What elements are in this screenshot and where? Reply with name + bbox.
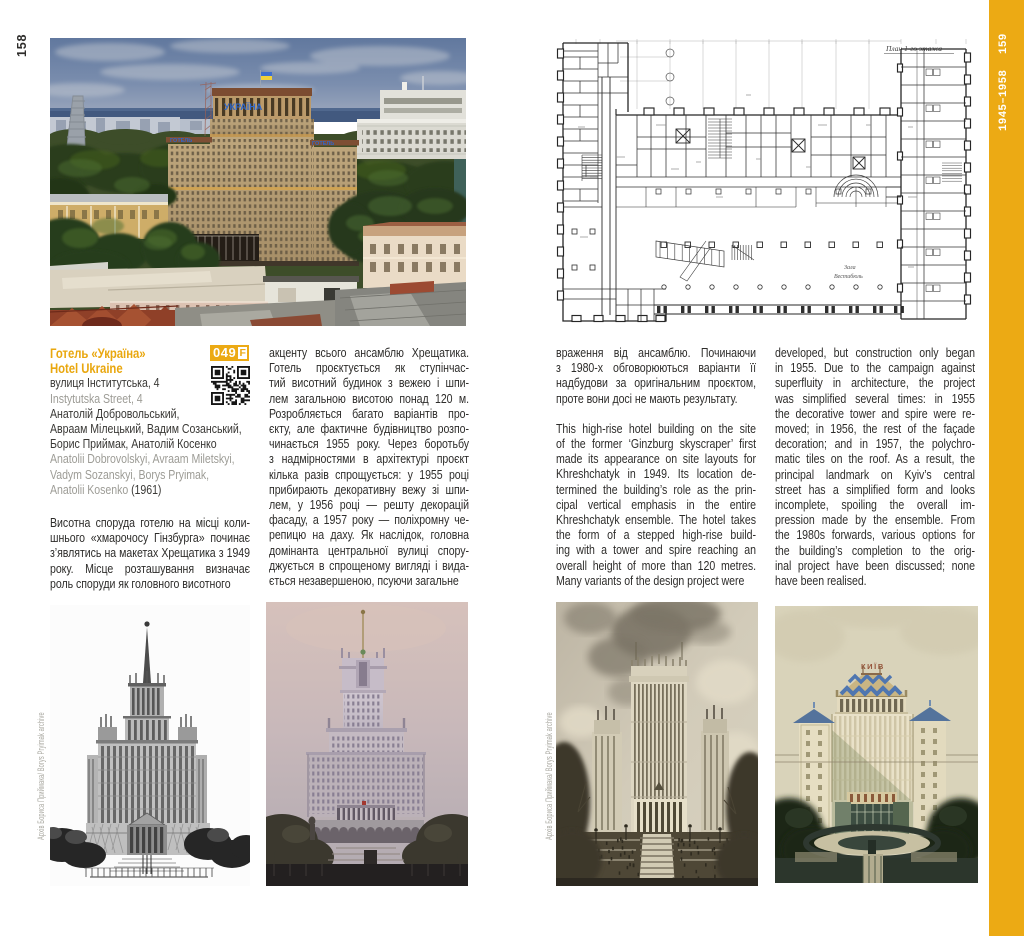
svg-text:Зала: Зала	[844, 265, 856, 271]
svg-text:Вестибюль: Вестибюль	[834, 273, 863, 280]
svg-text:ГОТЕЛЬ: ГОТЕЛЬ	[170, 138, 192, 144]
svg-text:ГОТЕЛЬ: ГОТЕЛЬ	[312, 141, 334, 147]
svg-text:КИЇВ: КИЇВ	[861, 662, 885, 671]
svg-text:УКРАЇНА: УКРАЇНА	[224, 102, 263, 112]
